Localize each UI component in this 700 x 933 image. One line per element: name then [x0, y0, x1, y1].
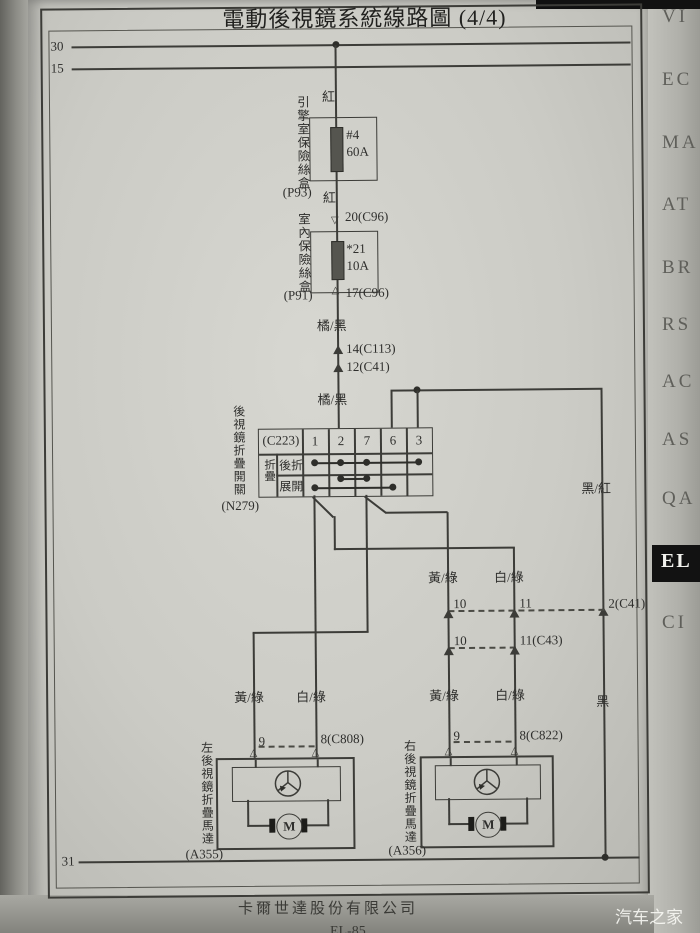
section-tab-ec: EC [662, 69, 692, 91]
fuse-number: *21 [346, 241, 366, 257]
connector-arrow [333, 363, 343, 372]
connector-arrow [509, 609, 519, 618]
section-tab-as: AS [662, 429, 692, 451]
connector-20-c96: 20(C96) [345, 209, 388, 225]
page-title: 電動後視鏡系統線路圖 (4/4) [222, 0, 507, 34]
wire-color-yellow-green-lm: 黃/綠 [234, 687, 264, 706]
contact-dot [337, 459, 344, 466]
left-motor-pin-8-c808: 8(C808) [320, 731, 363, 747]
engine-fusebox-code: (P93) [283, 184, 312, 200]
section-tab-qa: QA [662, 488, 695, 510]
wire-segment [305, 824, 329, 826]
connector-symbol: ▽ [331, 216, 339, 226]
right-motor-code: (A356) [388, 842, 426, 858]
manual-page-photo: 電動後視鏡系統線路圖 (4/4) 30 15 紅 #4 60A 引擎室保險絲盒 … [0, 0, 700, 933]
watermark: 汽车之家 [615, 903, 683, 928]
motor-symbol: M [276, 813, 302, 839]
wire-color-black-red: 黑/紅 [581, 478, 611, 497]
switch-code: (N279) [221, 498, 259, 514]
section-tab-rs: RS [662, 314, 691, 336]
clutch-icon [273, 768, 303, 798]
connector-arrow [443, 609, 453, 618]
right-motor-pin-8-c822: 8(C822) [519, 727, 562, 743]
switch-pin-6: 6 [383, 433, 403, 449]
connector-pin-11: 11 [519, 595, 532, 611]
wire-segment [334, 516, 336, 550]
right-motor-label: 右後視鏡折疊馬達 [402, 739, 420, 847]
fuse-number: #4 [346, 127, 359, 143]
wire-color-yellow-green-upper: 黃/綠 [428, 567, 458, 586]
connector-arrow [444, 646, 454, 655]
wire-segment [247, 800, 249, 827]
connector-arrow [510, 646, 520, 655]
connector-arrow [333, 345, 343, 354]
clutch-icon [472, 767, 502, 797]
wire-segment [391, 391, 393, 428]
switch-pin-3: 3 [409, 432, 429, 448]
wire-color-red-1: 紅 [322, 86, 335, 105]
page-code: EL-85 [330, 924, 366, 933]
section-tab-ci: CI [662, 612, 687, 634]
publisher-name: 卡爾世達股份有限公司 [238, 897, 418, 918]
connector-12-c41: 12(C41) [346, 359, 389, 375]
section-tab-br: BR [662, 257, 693, 279]
junction-dot [602, 854, 609, 861]
switch-group-label: 折疊 [261, 459, 277, 495]
section-tab-ac: AC [662, 371, 694, 393]
bus-31-label: 31 [62, 853, 75, 869]
wire-color-orange-black-1: 橘/黑 [317, 315, 347, 334]
fuse-element [331, 241, 344, 280]
diagram-sheet: 電動後視鏡系統線路圖 (4/4) 30 15 紅 #4 60A 引擎室保險絲盒 … [0, 0, 700, 933]
switch-connector-code: (C223) [260, 432, 302, 448]
wire-color-red-2: 紅 [323, 187, 336, 206]
fuse-rating: 10A [346, 258, 369, 274]
wire-segment [448, 823, 470, 825]
switch-name-label: 後視鏡折疊開關 [231, 405, 249, 497]
wire-segment [448, 798, 450, 825]
motor-terminal [269, 819, 275, 833]
wire-color-orange-black-2: 橘/黑 [317, 389, 347, 408]
mirror-fold-switch: (C223) 1 2 7 6 3 折疊 後折 展開 [258, 427, 434, 498]
connector-pin-10: 10 [454, 633, 467, 649]
fuse-element [330, 127, 343, 172]
fuse-rating: 60A [346, 144, 369, 160]
wire-color-black: 黑 [596, 691, 609, 710]
wire-color-white-green-rm: 白/綠 [495, 684, 525, 703]
switch-pin-1: 1 [305, 433, 325, 449]
contact-dot [415, 458, 422, 465]
contact-dot [311, 459, 318, 466]
wire-segment [327, 799, 329, 826]
connector-symbol: △ [332, 286, 340, 296]
switch-pin-7: 7 [357, 433, 377, 449]
left-fold-motor-box: M [216, 757, 356, 850]
motor-symbol: M [475, 812, 501, 838]
motor-terminal [468, 817, 474, 831]
cabin-fusebox-code: (P91) [284, 287, 313, 303]
connector-17-c96: 17(C96) [346, 285, 389, 301]
contact-dot [311, 484, 318, 491]
contact-dot [337, 475, 344, 482]
wire-segment [526, 797, 528, 824]
wire-segment [247, 825, 271, 827]
section-tab-vi: VI [662, 6, 688, 28]
bus-15-label: 15 [51, 60, 64, 76]
contact-link [367, 461, 419, 463]
section-tab-ma: MA [662, 132, 699, 154]
section-tab-at: AT [662, 194, 691, 216]
section-tab-el: EL [661, 550, 692, 573]
engine-fusebox-label: 引擎室保險絲盒 [293, 95, 313, 195]
switch-row-fold-label: 後折 [279, 456, 303, 473]
contact-dot [363, 475, 370, 482]
wire-color-white-green-lm: 白/綠 [296, 686, 326, 705]
left-motor-label: 左後視鏡折疊馬達 [199, 741, 217, 849]
connector-pin-10: 10 [453, 596, 466, 612]
wire-color-yellow-green-rm: 黃/綠 [429, 685, 459, 704]
connector-2-c41: 2(C41) [608, 595, 645, 611]
contact-dot [363, 459, 370, 466]
switch-row-extend-label: 展開 [279, 477, 303, 494]
wire-segment [504, 822, 528, 824]
contact-dot [389, 484, 396, 491]
connector-pin-11-c43: 11(C43) [520, 632, 563, 648]
right-fold-motor-box: M [420, 755, 555, 848]
connector-14-c113: 14(C113) [346, 341, 395, 357]
wire-segment [417, 390, 419, 427]
bus-30-label: 30 [50, 38, 63, 54]
wire-color-white-green-upper: 白/綠 [494, 566, 524, 585]
cabin-fusebox-label: 室內保險絲盒 [294, 212, 314, 296]
switch-pin-2: 2 [331, 433, 351, 449]
